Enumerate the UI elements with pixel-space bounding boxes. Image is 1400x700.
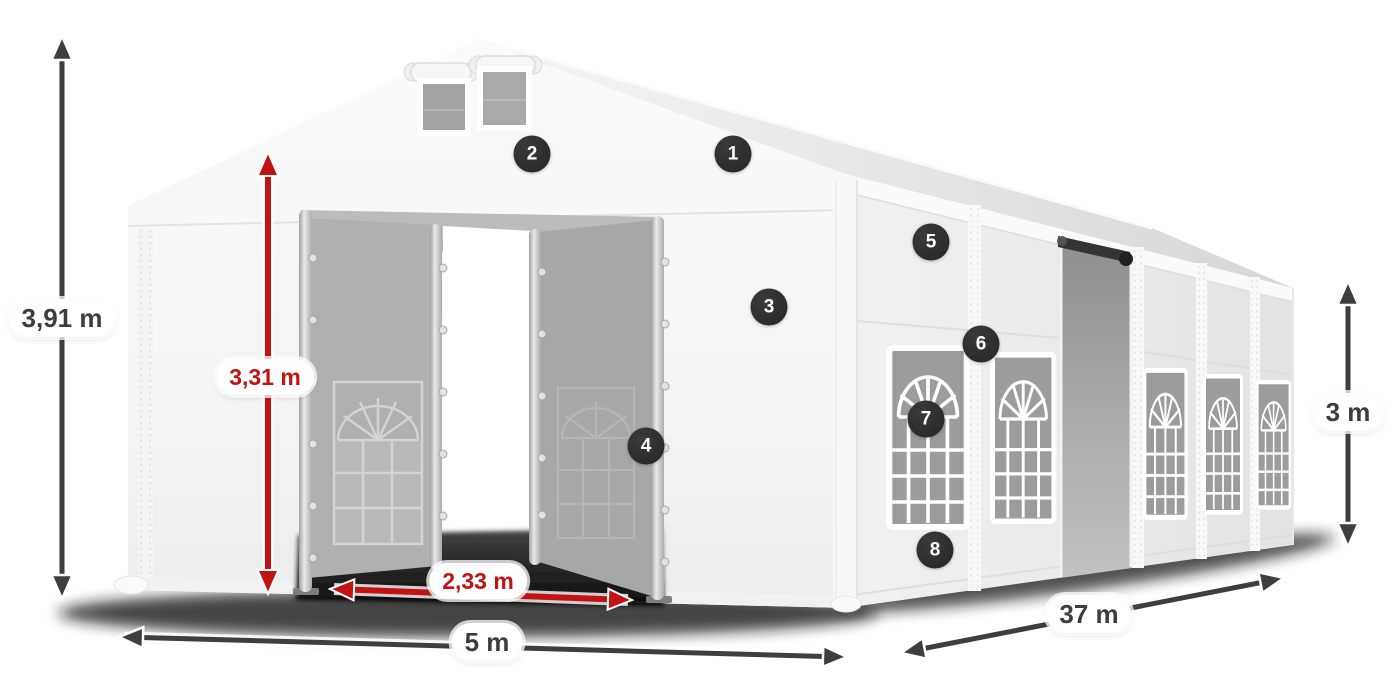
hotspot-badge-7: 7: [908, 401, 945, 438]
hotspot-badge-2: 2: [514, 136, 551, 173]
dimension-label-entrance-width: 2,33 m: [429, 563, 527, 599]
dimension-label-front-width: 5 m: [452, 623, 523, 661]
dimension-label-side-length: 37 m: [1046, 595, 1131, 633]
corner-post: [831, 176, 861, 612]
entrance-door-right: [537, 220, 658, 598]
dimension-label-entrance-height: 3,31 m: [216, 359, 314, 395]
tent-illustration: [0, 0, 1400, 700]
hotspot-badge-5: 5: [913, 224, 950, 261]
hotspot-badge-4: 4: [628, 428, 665, 465]
dimension-label-side-height: 3 m: [1313, 393, 1384, 431]
hotspot-badge-6: 6: [963, 326, 1000, 363]
entrance-door-left: [306, 218, 439, 578]
hotspot-badge-8: 8: [917, 532, 954, 569]
vent-window-left: [420, 81, 468, 133]
side-door-opening: [1057, 236, 1133, 578]
tent-dimensions-figure: 3,91 m 3,31 m 2,33 m 5 m 37 m 3 m 1 2 3 …: [0, 0, 1400, 700]
vent-window-right: [480, 69, 529, 128]
hotspot-badge-3: 3: [751, 289, 788, 326]
front-entrance: [293, 210, 672, 606]
hotspot-badge-1: 1: [715, 136, 752, 173]
dimension-label-total-height: 3,91 m: [9, 299, 116, 337]
side-wall: [831, 174, 1293, 612]
